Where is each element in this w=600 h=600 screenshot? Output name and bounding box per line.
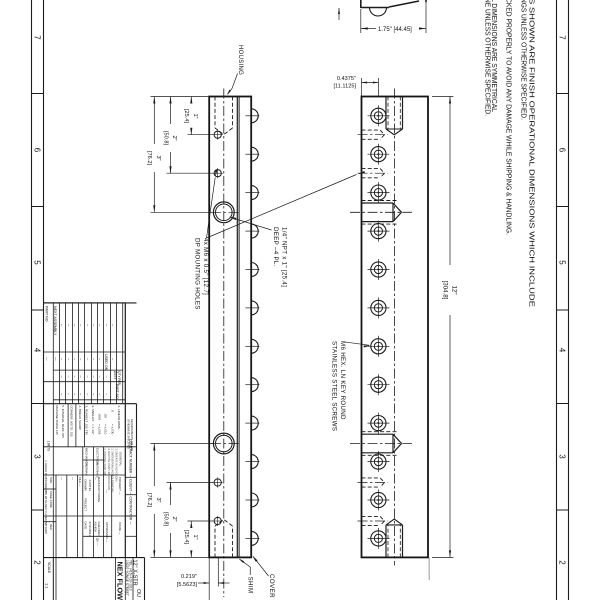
svg-text:[25.4]: [25.4]: [183, 109, 189, 123]
svg-text:–: –: [67, 393, 72, 396]
svg-text:[50.8]: [50.8]: [162, 512, 168, 526]
svg-text:M6 HEX. LN KEY ROUND: M6 HEX. LN KEY ROUND: [339, 341, 346, 420]
svg-text:10220 YONGE STREET: 10220 YONGE STREET: [125, 560, 129, 596]
svg-text:TEL: (416) 410-1313: TEL: (416) 410-1313: [129, 560, 133, 591]
svg-text:7: 7: [557, 35, 566, 40]
svg-text:DEEP –4 PL.: DEEP –4 PL.: [272, 227, 279, 267]
svg-text:DATE: DATE: [84, 522, 88, 530]
svg-text:2. ANGLES: 2. ANGLES: [91, 406, 95, 422]
svg-text:= ±.010: = ±.010: [104, 424, 108, 435]
svg-text:–: –: [79, 358, 84, 361]
svg-text:ASSY: ASSY: [113, 371, 117, 380]
svg-text:APPROVED —: APPROVED —: [105, 522, 109, 543]
svg-text:S SHOWN ARE FINISH OPERATIONAL: S SHOWN ARE FINISH OPERATIONAL DIMENSION…: [528, 0, 535, 307]
svg-text:–: –: [105, 393, 110, 396]
svg-text:–: –: [98, 358, 103, 361]
svg-text:3": 3": [155, 497, 161, 502]
svg-text:–: –: [111, 324, 116, 327]
svg-text:—: —: [45, 477, 49, 480]
svg-text:.X: .X: [110, 409, 114, 412]
svg-text:CORNERS .005 TO .015: CORNERS .005 TO .015: [70, 406, 74, 437]
svg-text:–: –: [92, 324, 97, 327]
svg-text:–: –: [73, 324, 78, 327]
svg-text:2": 2": [171, 516, 177, 521]
svg-text:–: –: [92, 376, 97, 379]
svg-text:SHIM: SHIM: [247, 577, 254, 594]
svg-text:NEX FLOW: NEX FLOW: [116, 562, 125, 600]
svg-text:CLIENT —: CLIENT —: [129, 479, 133, 496]
svg-text:GENERAL: GENERAL: [118, 452, 122, 467]
svg-text:2": 2": [171, 135, 177, 140]
svg-text:6: 6: [557, 148, 566, 153]
svg-text:[304.8]: [304.8]: [442, 281, 449, 300]
svg-text:—: —: [93, 477, 97, 480]
svg-text:0.219": 0.219": [181, 574, 197, 580]
svg-text:3: 3: [557, 454, 566, 459]
svg-text:1. DIMS ARE IN INCHES (DIA): 1. DIMS ARE IN INCHES (DIA): [114, 449, 117, 482]
svg-text:5. INTERNAL RADII .015: 5. INTERNAL RADII .015: [61, 406, 65, 439]
svg-text:7: 7: [32, 35, 41, 40]
svg-text:1": 1": [192, 113, 198, 118]
svg-text:1.75" [44.45]: 1.75" [44.45]: [378, 27, 412, 33]
svg-text:–: –: [86, 324, 91, 327]
svg-text:CHECKED: CHECKED: [97, 522, 101, 536]
svg-text:–: –: [86, 358, 91, 361]
svg-text:ASHISH: ASHISH: [94, 522, 98, 533]
svg-text:CKED PROPERLY TO AVOID ANY DAM: CKED PROPERLY TO AVOID ANY DAMAGE WHILE …: [505, 0, 512, 235]
svg-text:–: –: [105, 376, 110, 379]
svg-text:–: –: [98, 393, 103, 396]
svg-text:HOUSING: HOUSING: [237, 45, 243, 75]
svg-text:—: —: [54, 357, 58, 361]
svg-text:THERMAL: THERMAL: [85, 462, 89, 476]
svg-text:SIZE: SIZE: [49, 477, 53, 483]
svg-text:—: —: [45, 357, 49, 361]
svg-text:3": 3": [155, 155, 161, 160]
svg-text:4: 4: [32, 348, 41, 353]
svg-text:STAINLESS STEEL SCREWS: STAINLESS STEEL SCREWS: [331, 341, 338, 431]
svg-text:–: –: [60, 358, 65, 361]
svg-text:–: –: [60, 393, 65, 396]
svg-text:PART NO: PART NO: [115, 384, 119, 399]
svg-text:PROJECT —: PROJECT —: [118, 477, 122, 495]
svg-text:—: —: [71, 477, 75, 480]
svg-text:2: 2: [32, 560, 41, 565]
svg-text:MACHINE FINISH 125: MACHINE FINISH 125: [55, 406, 59, 436]
svg-text:NEXT ASSEMBLY: NEXT ASSEMBLY: [53, 306, 57, 336]
svg-text:1. LINEAR DIMS.: 1. LINEAR DIMS.: [117, 406, 121, 430]
svg-text:—: —: [105, 490, 109, 493]
svg-text:2: 2: [557, 560, 566, 565]
svg-text:–: –: [111, 358, 116, 361]
svg-text:5: 5: [32, 260, 41, 265]
svg-text:–: –: [73, 393, 78, 396]
svg-text:SCALE: SCALE: [47, 562, 51, 574]
svg-text:CONTRACTOR —: CONTRACTOR —: [129, 497, 133, 526]
svg-text:–: –: [98, 376, 103, 379]
svg-text:PROJECT: PROJECT: [84, 498, 88, 511]
svg-text:CAGE CODE: CAGE CODE: [49, 491, 53, 508]
svg-text:L DIMENSIONS ARE SYMMETRICAL: L DIMENSIONS ARE SYMMETRICAL: [490, 0, 497, 112]
svg-text:—: —: [60, 477, 64, 480]
svg-text:–: –: [60, 324, 65, 327]
svg-text:NE UNLESS OTHERWISE SPECIFIED.: NE UNLESS OTHERWISE SPECIFIED.: [484, 0, 491, 116]
svg-text:LIMITS: LIMITS: [46, 441, 50, 451]
svg-text:1": 1": [192, 534, 198, 539]
svg-text:3: 3: [32, 454, 41, 459]
svg-text:PART NO: PART NO: [45, 306, 49, 322]
svg-text:OU: OU: [135, 589, 141, 597]
svg-text:DRAWN: DRAWN: [84, 480, 88, 491]
svg-text:–: –: [60, 376, 65, 379]
svg-text:–: –: [67, 324, 72, 327]
svg-text:NGS UNLESS OTHERWISE SPECIFIED: NGS UNLESS OTHERWISE SPECIFIED.: [520, 0, 527, 120]
svg-text:0.4375": 0.4375": [337, 76, 356, 82]
svg-text:1/4" NPT x 1" [25.4]: 1/4" NPT x 1" [25.4]: [281, 227, 288, 287]
svg-text:DP MOUNTING HOLES: DP MOUNTING HOLES: [194, 238, 201, 310]
svg-text:[50.8]: [50.8]: [162, 131, 168, 145]
svg-text:–: –: [79, 393, 84, 396]
svg-text:[76.2]: [76.2]: [146, 151, 152, 165]
svg-text:–: –: [67, 376, 72, 379]
svg-text:MANUFACTURING: MANUFACTURING: [97, 477, 101, 503]
svg-text:—: —: [45, 491, 49, 494]
svg-text:1:1: 1:1: [45, 583, 50, 589]
svg-text:–: –: [79, 376, 84, 379]
svg-text:[76.2]: [76.2]: [146, 493, 152, 507]
svg-text:–: –: [92, 393, 97, 396]
svg-text:–: –: [92, 358, 97, 361]
svg-text:MATERIALS: MATERIALS: [96, 462, 100, 478]
svg-text:= ± 1/2°: = ± 1/2°: [91, 424, 95, 436]
svg-text:.XX: .XX: [104, 413, 108, 418]
svg-text:–: –: [86, 376, 91, 379]
svg-text:QA —: QA —: [96, 538, 100, 546]
svg-text:4x M6 x 0.5" [12.7]: 4x M6 x 0.5" [12.7]: [202, 238, 209, 295]
svg-text:4. BREAK SHARP: 4. BREAK SHARP: [78, 406, 82, 431]
svg-text:4: 4: [557, 348, 566, 353]
svg-text:3. RUNOUT .010 TIR: 3. RUNOUT .010 TIR: [85, 406, 89, 436]
svg-text:6: 6: [32, 148, 41, 153]
svg-text:–: –: [86, 393, 91, 396]
svg-text:–: –: [98, 324, 103, 327]
svg-text:–: –: [67, 358, 72, 361]
svg-text:–: –: [73, 358, 78, 361]
svg-text:–: –: [73, 376, 78, 379]
svg-text:3. MACHINE FINISH 125 MICRO RM: 3. MACHINE FINISH 125 MICRO RMS: [107, 449, 110, 491]
svg-text:—: —: [45, 524, 49, 527]
svg-text:.XXX: .XXX: [97, 413, 101, 420]
svg-text:[5.5623]: [5.5623]: [177, 582, 198, 588]
svg-text:ISSUE —: ISSUE —: [118, 522, 122, 535]
svg-text:FILE —: FILE —: [78, 477, 82, 487]
svg-text:27/11/2013: 27/11/2013: [88, 522, 92, 537]
svg-text:= ±.030: = ±.030: [110, 424, 114, 435]
svg-text:COVER: COVER: [268, 574, 275, 598]
svg-text:REV: REV: [49, 524, 53, 530]
svg-text:5: 5: [557, 260, 566, 265]
svg-text:[25.4]: [25.4]: [183, 530, 189, 544]
svg-text:[11.1125]: [11.1125]: [334, 84, 357, 90]
svg-text:S.PATEL: S.PATEL: [88, 480, 92, 492]
svg-text:–: –: [79, 324, 84, 327]
svg-text:12": 12": [451, 285, 458, 294]
svg-text:–: –: [105, 324, 110, 327]
svg-text:USED ON: USED ON: [104, 354, 108, 371]
svg-text:= ±.005: = ±.005: [97, 424, 101, 435]
